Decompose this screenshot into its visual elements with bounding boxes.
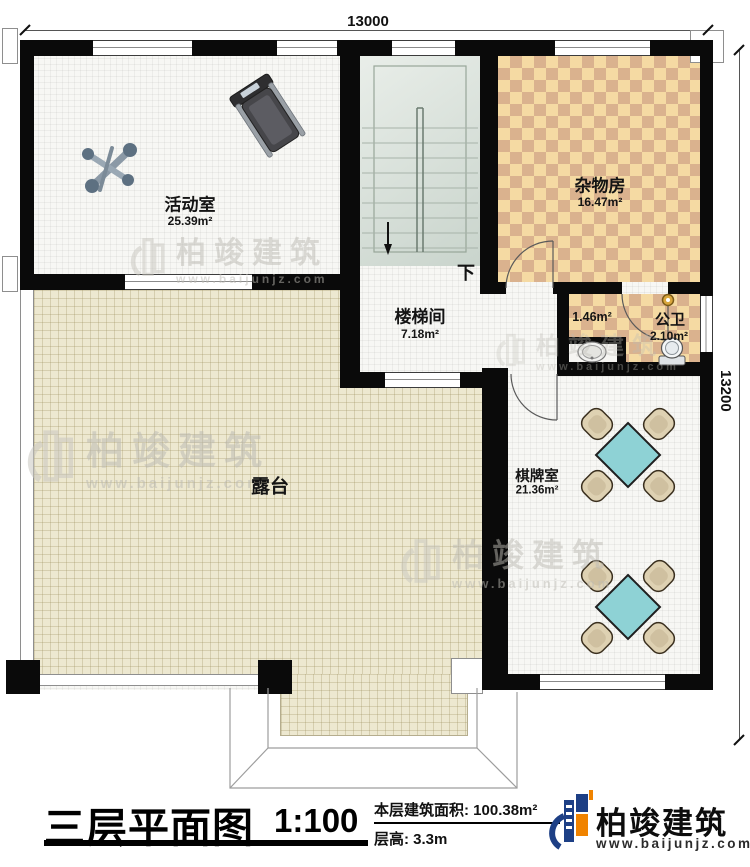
wall xyxy=(455,40,555,56)
window-bath-right xyxy=(700,296,713,352)
wall xyxy=(700,352,713,690)
window-stair-top xyxy=(392,40,455,56)
pilaster-gameroom-corner xyxy=(451,658,483,694)
floor-area-label: 本层建筑面积: xyxy=(374,802,469,819)
window-storage-top xyxy=(555,40,650,56)
wall xyxy=(20,40,34,290)
room-label-storage: 杂物房 xyxy=(575,178,626,195)
floor-height-label: 层高: xyxy=(374,831,409,848)
storage-room-floor xyxy=(498,56,700,282)
wall xyxy=(700,40,713,296)
room-label-gameroom: 棋牌室 xyxy=(515,470,559,485)
pilaster-mid-left xyxy=(2,256,18,292)
wall xyxy=(480,40,498,294)
window-activity-top-1 xyxy=(93,40,192,56)
room-area-vestibule: 1.46m² xyxy=(572,311,612,324)
terrace-column-left xyxy=(6,660,40,694)
wall xyxy=(482,368,508,690)
pilaster-top-left xyxy=(2,28,18,64)
room-label-activity: 活动室 xyxy=(165,197,216,214)
floor-area-row: 本层建筑面积: 100.38m² xyxy=(374,799,537,820)
brand-logo-icon xyxy=(544,788,594,854)
terrace-floor-extension xyxy=(280,674,468,736)
room-label-stairwell: 楼梯间 xyxy=(395,309,446,326)
sink-niche-floor xyxy=(569,343,618,362)
window-activity-terrace xyxy=(125,274,252,290)
wall xyxy=(482,674,540,690)
wall xyxy=(557,362,713,376)
wall xyxy=(498,282,506,294)
terrace-railing-left xyxy=(20,290,34,674)
floor-plan-page: { "dimensions": { "top": "13000", "right… xyxy=(0,0,750,867)
wall xyxy=(20,274,125,290)
floor-height-row: 层高: 3.3m xyxy=(374,828,447,849)
window-activity-top-2 xyxy=(277,40,337,56)
terrace-railing-bottom xyxy=(20,674,260,686)
room-area-bath: 2.10m² xyxy=(650,330,688,342)
wall xyxy=(617,337,626,362)
terrace-floor-upper xyxy=(34,290,340,386)
wall xyxy=(360,372,385,388)
wall xyxy=(558,337,620,344)
floor-area-value: 100.38m² xyxy=(473,802,537,819)
room-label-terrace: 露台 xyxy=(251,478,289,497)
wall xyxy=(340,40,360,388)
plan-scale: 1:100 xyxy=(274,802,358,840)
window-gameroom-bottom xyxy=(540,674,665,690)
dimension-top-label: 13000 xyxy=(347,13,389,30)
stair-shaft-floor xyxy=(360,56,480,266)
dimension-line-right xyxy=(739,50,740,740)
dimension-line-top xyxy=(25,30,710,31)
room-area-gameroom: 21.36m² xyxy=(516,485,559,497)
brand-url: www.baijunjz.com xyxy=(596,836,750,851)
terrace-column-mid xyxy=(258,660,292,694)
room-area-storage: 16.47m² xyxy=(578,196,623,208)
wall xyxy=(192,40,277,56)
window-stairwell-terrace xyxy=(385,372,460,388)
titleblock-divider xyxy=(374,822,560,824)
terrace-floor-main xyxy=(34,386,482,674)
room-label-bath: 公卫 xyxy=(655,313,685,328)
dimension-right-label: 13200 xyxy=(717,370,734,412)
floor-height-value: 3.3m xyxy=(413,831,447,848)
room-area-stairwell: 7.18m² xyxy=(401,328,439,340)
stair-direction-label: 下 xyxy=(457,264,475,282)
wall xyxy=(460,372,482,388)
room-area-activity: 25.39m² xyxy=(168,215,213,227)
wall xyxy=(252,274,345,290)
title-underline xyxy=(44,840,368,846)
